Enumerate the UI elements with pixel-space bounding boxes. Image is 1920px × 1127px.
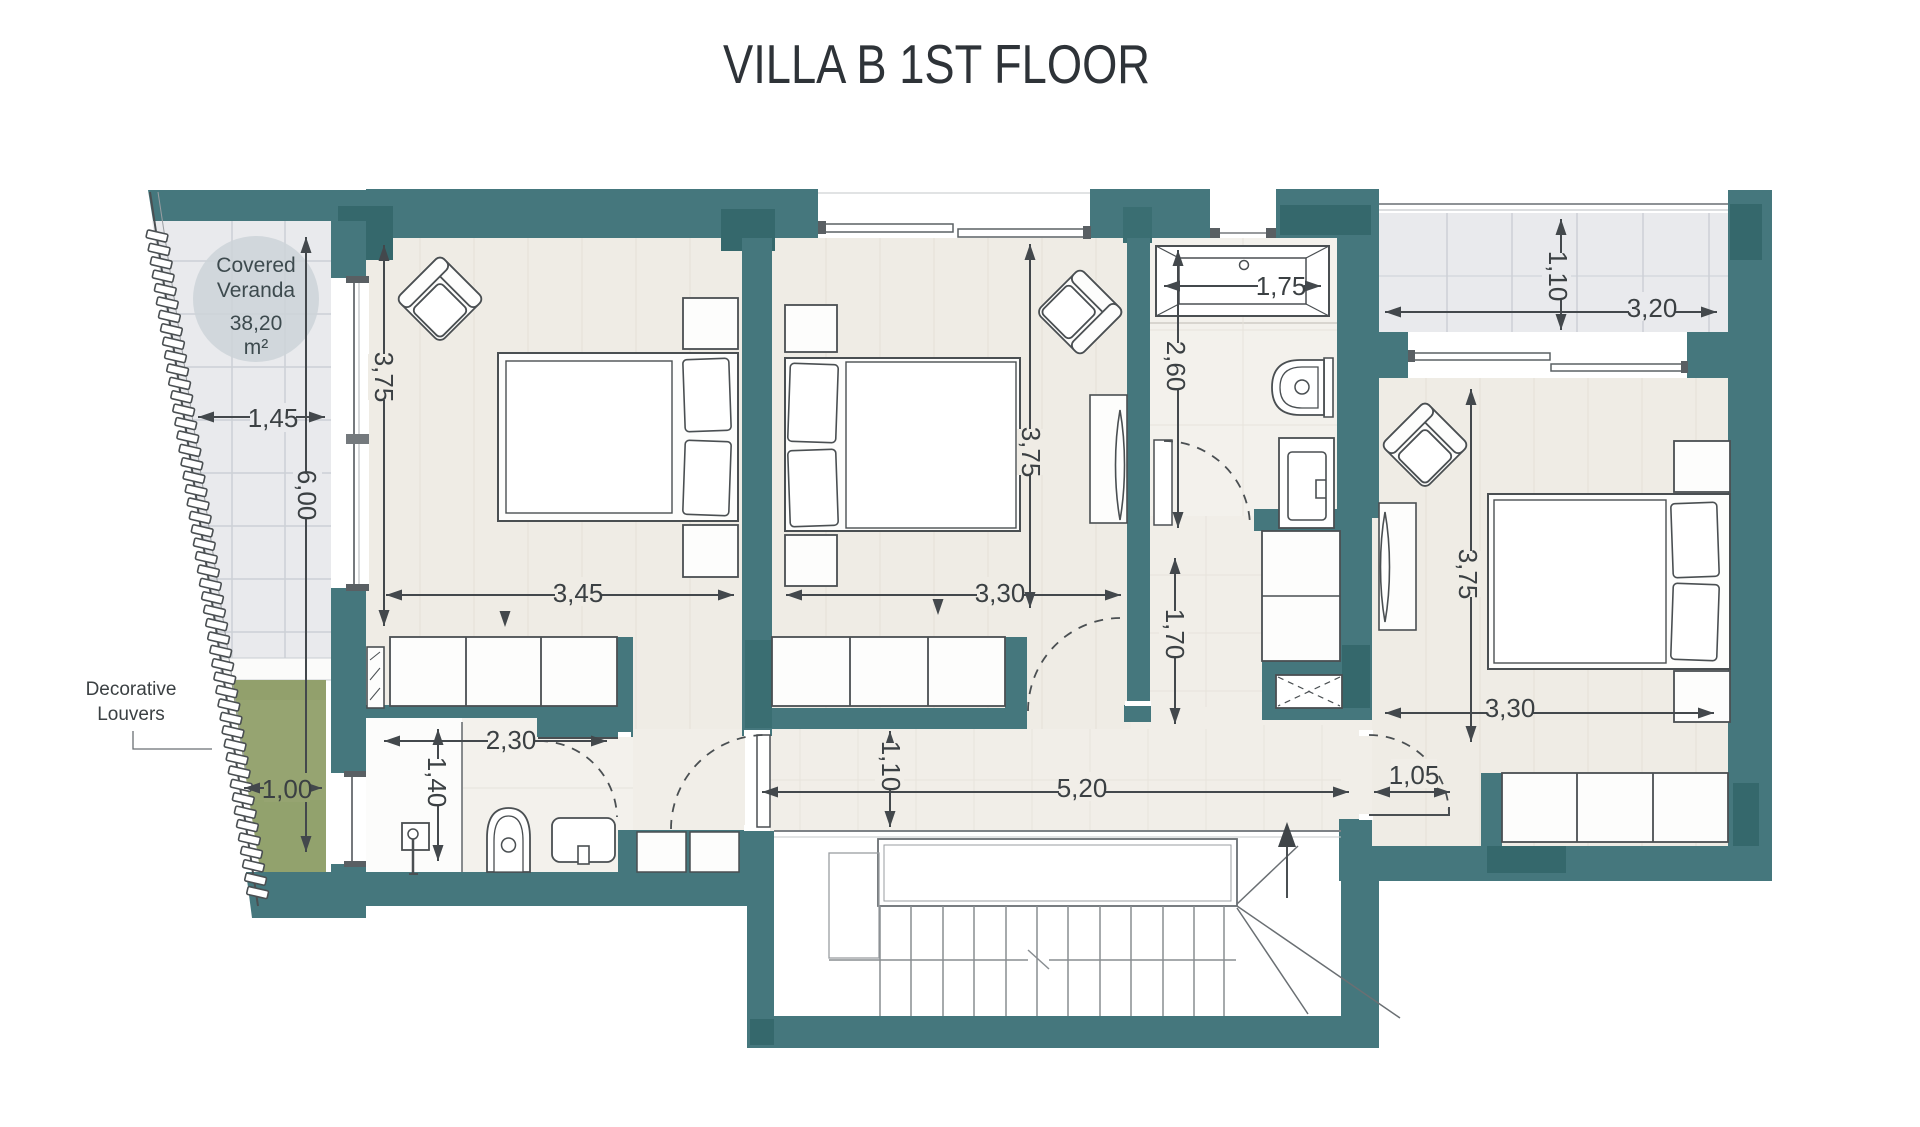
svg-text:Decorative: Decorative [86,679,177,700]
svg-text:3,75: 3,75 [1453,549,1483,600]
svg-text:1,10: 1,10 [876,741,906,792]
svg-text:3,30: 3,30 [1485,693,1536,723]
svg-text:3,30: 3,30 [975,578,1026,608]
svg-text:3,75: 3,75 [1016,427,1046,478]
svg-text:VILLA B 1ST FLOOR: VILLA B 1ST FLOOR [723,33,1150,95]
svg-text:1,05: 1,05 [1389,760,1440,790]
svg-text:2,30: 2,30 [486,725,537,755]
svg-text:1,00: 1,00 [262,774,313,804]
svg-text:3,20: 3,20 [1627,293,1678,323]
svg-text:1,45: 1,45 [248,403,299,433]
svg-text:2,60: 2,60 [1161,341,1191,392]
svg-text:38,20: 38,20 [230,312,283,335]
svg-text:Covered: Covered [216,254,295,277]
svg-text:1,75: 1,75 [1256,271,1307,301]
svg-text:3,75: 3,75 [369,352,399,403]
svg-text:1,10: 1,10 [1543,251,1573,302]
svg-text:5,20: 5,20 [1057,773,1108,803]
svg-text:3,45: 3,45 [553,578,604,608]
svg-text:1,70: 1,70 [1160,609,1190,660]
svg-text:6,00: 6,00 [292,470,322,521]
svg-text:Veranda: Veranda [217,279,296,302]
svg-text:1,40: 1,40 [422,757,452,808]
svg-text:Louvers: Louvers [97,704,165,725]
svg-text:m²: m² [244,336,269,359]
